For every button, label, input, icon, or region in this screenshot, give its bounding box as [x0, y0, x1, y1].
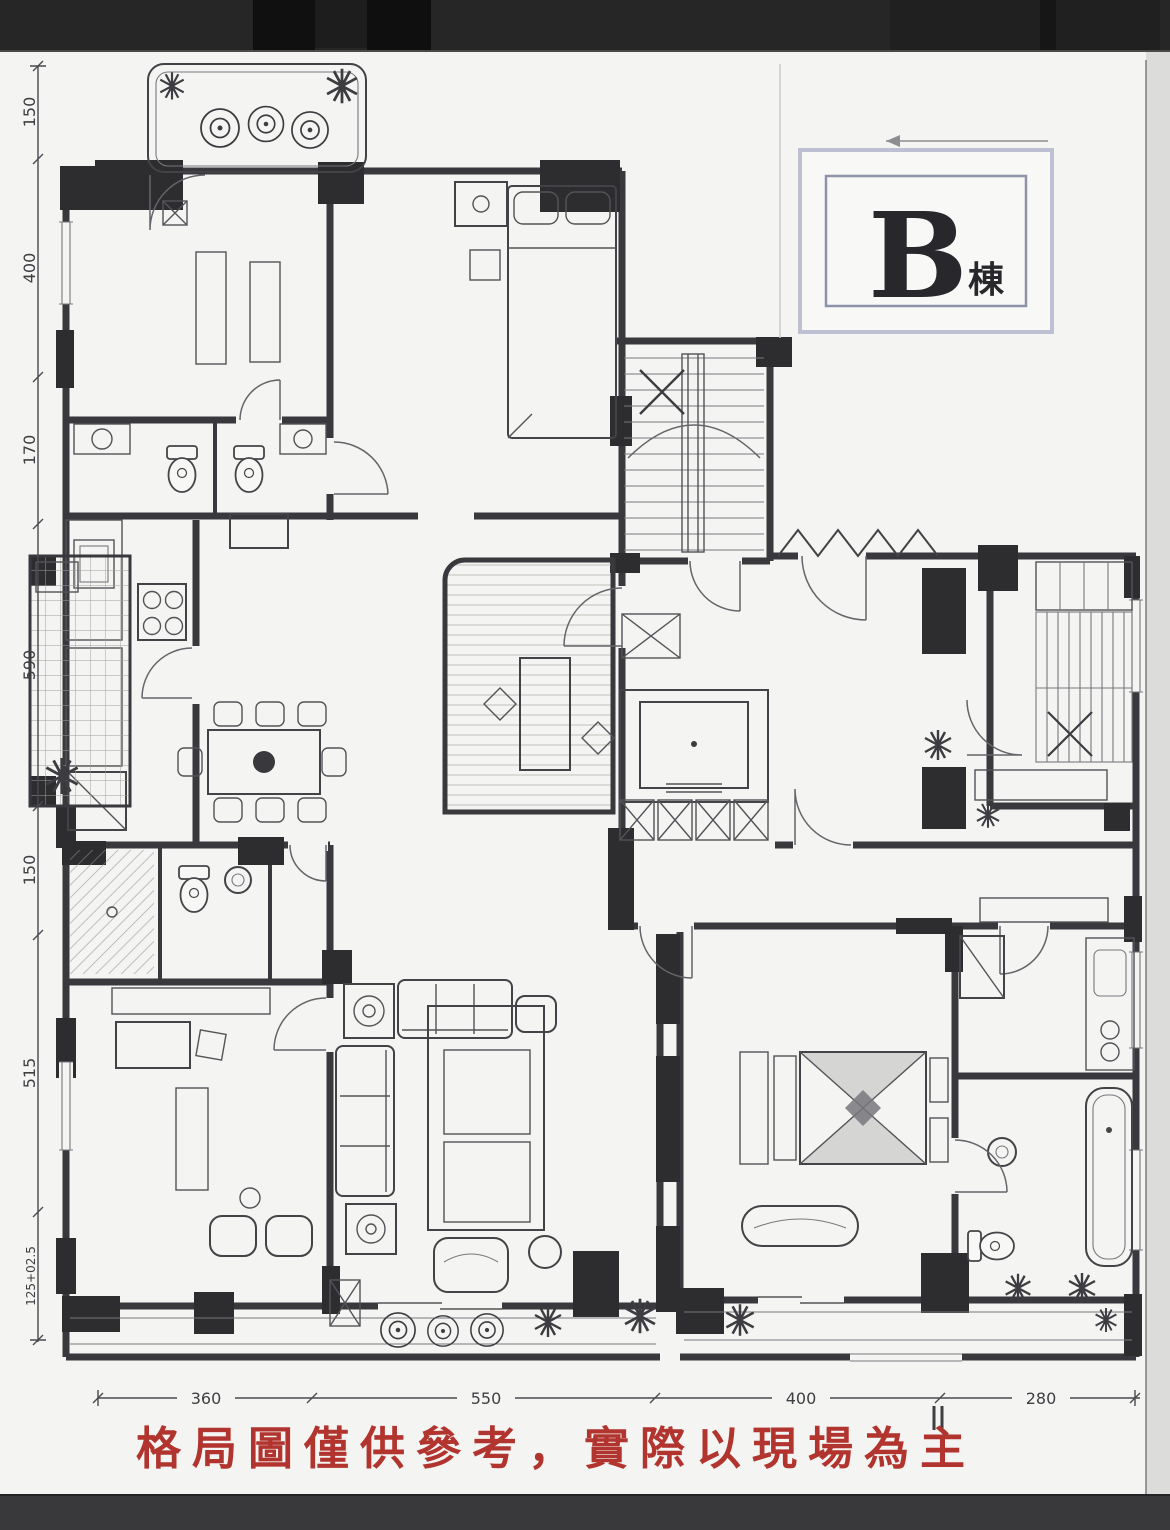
- dim-label-left: 170: [20, 435, 39, 466]
- dim-label-left: 150: [20, 855, 39, 886]
- building-suffix: 棟: [968, 260, 1005, 301]
- floor-plan-photo: 150 400 170 590 150 515 125+02.5 360 550…: [0, 0, 1170, 1530]
- building-label: B 棟: [800, 135, 1052, 332]
- toilet-icon: [968, 1231, 1014, 1261]
- disclaimer-text: 格局圖僅供參考，實際以現場為主: [136, 1424, 976, 1474]
- dim-label-left: 515: [20, 1058, 39, 1089]
- side-balcony-left: [30, 556, 130, 806]
- toilet-icon: [234, 446, 264, 492]
- toilet-icon: [167, 446, 197, 492]
- dim-label-bottom: 360: [191, 1389, 222, 1408]
- shower-area: [70, 850, 154, 974]
- building-letter: B: [868, 186, 968, 325]
- photo-top-bar: [0, 0, 1170, 52]
- photo-right-band: [1146, 52, 1170, 1494]
- dim-label-bottom: 400: [786, 1389, 817, 1408]
- dim-label-bottom: 550: [471, 1389, 502, 1408]
- dim-label-bottom: 280: [1026, 1389, 1057, 1408]
- toilet-icon: [179, 866, 209, 912]
- dim-label-left: 150: [20, 97, 39, 128]
- dim-label-left: 125+02.5: [24, 1246, 38, 1306]
- dim-label-left: 590: [20, 650, 39, 681]
- dim-label-left: 400: [20, 253, 39, 284]
- photo-bottom-bar: [0, 1494, 1170, 1530]
